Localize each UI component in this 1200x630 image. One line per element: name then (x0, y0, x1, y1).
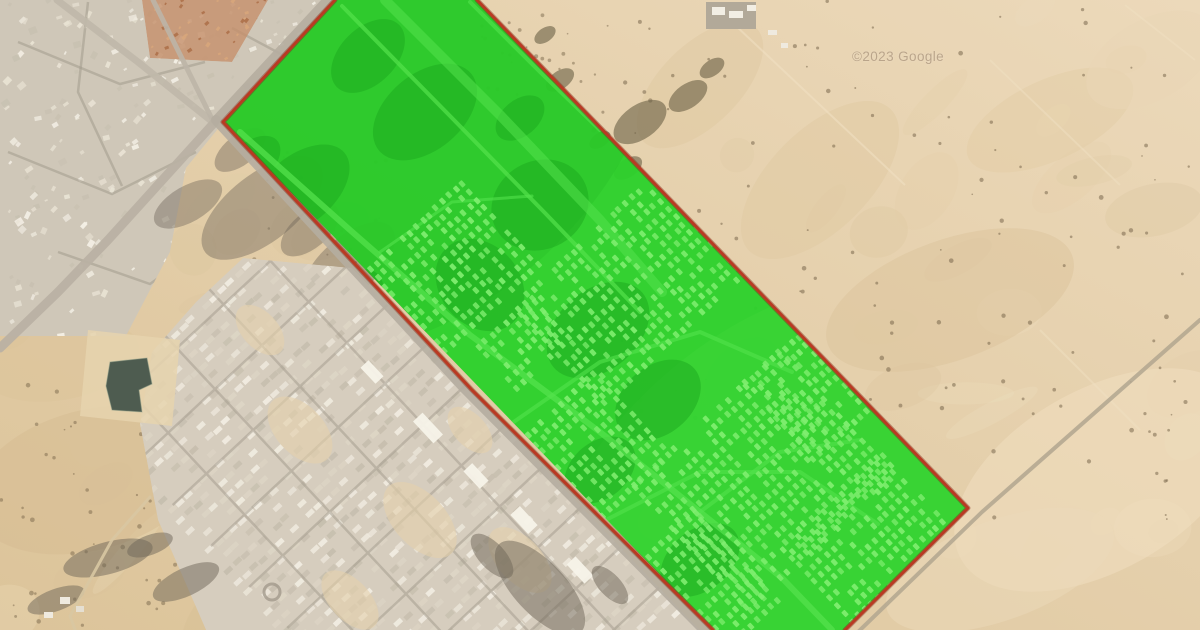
satellite-scene (0, 0, 1200, 630)
satellite-map-viewport[interactable]: ©2023 Google (0, 0, 1200, 630)
